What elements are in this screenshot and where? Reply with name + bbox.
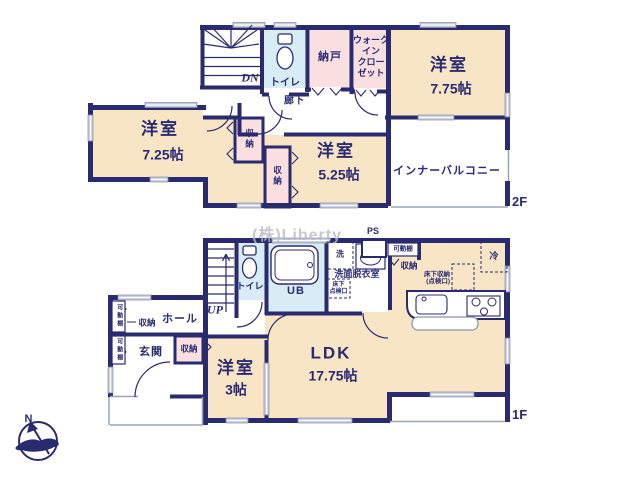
room-725-name: 洋室	[141, 121, 179, 140]
storeroom-label: 納戸	[318, 51, 342, 63]
closet-a-label: 収納	[244, 129, 253, 150]
left-shelf-top-label: 可動棚	[115, 304, 122, 328]
room-775-name: 洋室	[430, 57, 468, 76]
hall-label: ホール	[162, 313, 198, 325]
underfloor-storage-label: 床下収納 (点検口)	[424, 271, 450, 285]
floor2-label: 2F	[512, 195, 527, 209]
washroom-label: 洗面脱衣室	[334, 270, 379, 280]
underfloor-access-line1: 床下	[329, 282, 347, 289]
room3-fill	[206, 337, 265, 420]
counter-front-edge	[412, 317, 478, 330]
room-725-size: 7.25帖	[142, 147, 183, 162]
left-shelf-bottom-label: 可動棚	[115, 338, 122, 362]
wic-line2: イン	[353, 46, 389, 57]
entrance-closet-label: 収納	[180, 344, 197, 353]
balcony-label: インナーバルコニー	[393, 165, 501, 177]
toilet1f-tank-icon	[243, 246, 256, 255]
room-525-size: 5.25帖	[318, 167, 359, 182]
hallway-label: 廊下	[284, 96, 304, 107]
ldk-size: 17.75帖	[308, 368, 357, 383]
ps-box	[362, 240, 386, 257]
kitchen-shelf-label: 可動棚	[393, 245, 413, 252]
toilet2f-label: トイレ	[270, 78, 300, 89]
toilet1f-label: トイレ	[236, 282, 263, 292]
toilet2f-tank-icon	[278, 34, 292, 44]
compass-ornament	[15, 438, 58, 451]
washer-label: 洗	[336, 251, 344, 260]
stairs-dn-label: DN	[241, 71, 258, 84]
toilet1f-bowl-icon	[243, 258, 257, 278]
underfloor-storage-line2: (点検口)	[424, 278, 450, 285]
toilet2f-bowl-icon	[277, 47, 293, 69]
door-arc-toilet1f	[237, 302, 262, 327]
room3-size: 3帖	[225, 382, 247, 397]
kitchen-closet-label: 収納	[400, 261, 417, 270]
room3-name: 洋室	[217, 360, 255, 379]
fridge-label: 冷	[489, 252, 498, 262]
wic-line4: ゼット	[353, 68, 389, 79]
bath-label: UB	[287, 285, 305, 297]
wic-line3: クロー	[353, 57, 389, 68]
door-arc-entrance	[135, 362, 170, 397]
underfloor-access-label: 床下 点検口	[329, 282, 347, 296]
balcony-fill	[391, 120, 507, 206]
stairs-up-label: UP	[207, 303, 223, 316]
ps-label: PS	[367, 227, 379, 237]
entrance-label: 玄関	[139, 346, 163, 358]
wic-label: ウォーク イン クロー ゼット	[353, 35, 389, 79]
underfloor-storage-line1: 床下収納	[424, 271, 450, 278]
compass	[15, 421, 58, 460]
compass-north-label: N	[25, 413, 34, 425]
ldk-name: LDK	[311, 345, 352, 364]
underfloor-access-line2: 点検口	[329, 289, 347, 296]
room-775-size: 7.75帖	[430, 81, 471, 96]
floorplan-canvas: 洋室 7.75帖 洋室 7.25帖 洋室 5.25帖 納戸 トイレ ウォーク イ…	[0, 0, 640, 480]
closet-b-label: 収納	[272, 166, 281, 187]
watermark: (株)Liberty	[252, 227, 342, 245]
wic-line1: ウォーク	[353, 35, 389, 46]
floor1-label: 1F	[512, 408, 527, 422]
room-525-name: 洋室	[317, 143, 355, 162]
bathtub-icon	[271, 246, 318, 284]
hall-closet-label: 収納	[138, 318, 155, 327]
